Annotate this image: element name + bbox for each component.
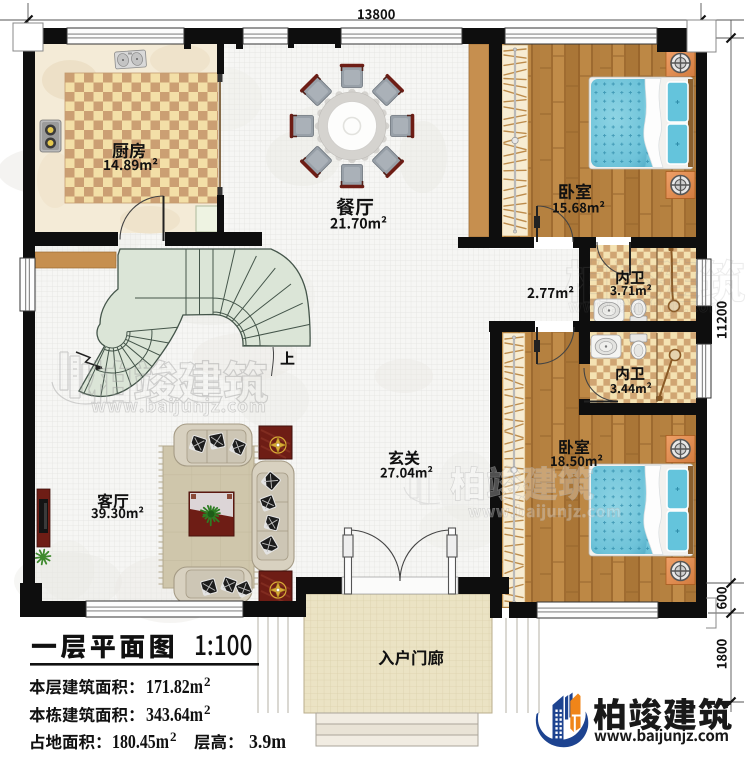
- svg-text:2: 2: [204, 702, 211, 717]
- svg-text:3.9m: 3.9m: [249, 731, 286, 753]
- svg-text:171.82m: 171.82m: [146, 676, 203, 698]
- svg-text:180.45m: 180.45m: [112, 731, 169, 753]
- svg-text:2: 2: [170, 729, 177, 744]
- svg-text:2: 2: [204, 674, 211, 689]
- svg-text:343.64m: 343.64m: [146, 704, 203, 726]
